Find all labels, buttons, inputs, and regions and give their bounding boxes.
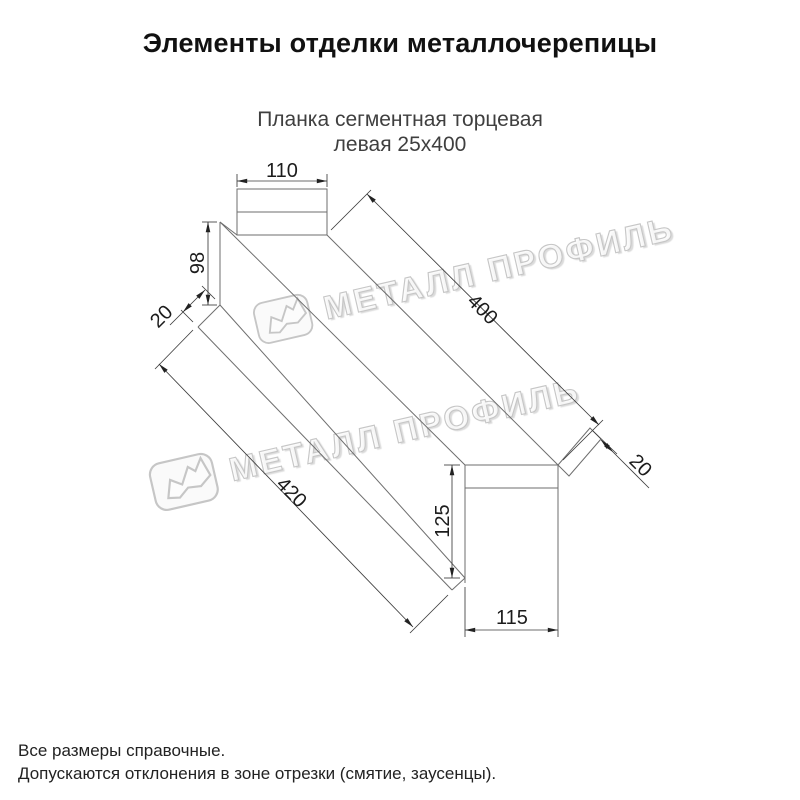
dimension-end-fold: 20	[593, 431, 656, 488]
part-outline	[198, 189, 601, 630]
footnote-line2: Допускаются отклонения в зоне отрезки (с…	[18, 763, 496, 784]
page: Элементы отделки металлочерепицы Планка …	[0, 0, 800, 800]
extension-line	[410, 595, 448, 633]
dimension-label: 115	[496, 607, 528, 629]
dimension-top-edge-length: 400	[331, 190, 603, 460]
extension-line	[155, 330, 193, 369]
dimension-label: 98	[187, 252, 209, 274]
left-end-top-cut	[220, 222, 237, 235]
dimension-line	[183, 290, 205, 312]
dimension-label: 110	[266, 160, 298, 182]
extension-line	[563, 420, 603, 460]
dimension-label: 125	[432, 504, 454, 537]
hem-edge	[198, 327, 452, 590]
extension-line	[202, 286, 215, 299]
dimension-label: 20	[146, 301, 177, 332]
bottom-edge	[220, 305, 465, 578]
hem-end-cut	[452, 578, 465, 590]
extension-line	[331, 190, 371, 230]
dimension-label: 400	[463, 290, 502, 329]
dimension-left-hem: 20	[146, 286, 215, 332]
dimension-top-width: 110	[237, 160, 327, 187]
ridge-edge	[220, 222, 465, 465]
left-end-hem-cut	[198, 305, 220, 327]
page-title: Элементы отделки металлочерепицы	[0, 28, 800, 59]
dimension-label: 20	[625, 450, 656, 481]
dimension-line	[601, 440, 613, 452]
part-name-line2: левая 25х400	[0, 132, 800, 157]
extension-line	[593, 431, 617, 454]
footnotes: Все размеры справочные. Допускаются откл…	[18, 740, 496, 786]
part-name-line1: Планка сегментная торцевая	[0, 107, 800, 132]
footnote-line1: Все размеры справочные.	[18, 740, 496, 761]
part-subtitle: Планка сегментная торцевая левая 25х400	[0, 107, 800, 157]
dimension-end-cap-height: 125	[432, 465, 460, 578]
end-fold-face	[558, 428, 601, 476]
dimension-label: 420	[272, 473, 311, 512]
dimension-bottom-edge-length: 420	[155, 330, 448, 633]
dimension-end-cap-width: 115	[465, 587, 558, 637]
